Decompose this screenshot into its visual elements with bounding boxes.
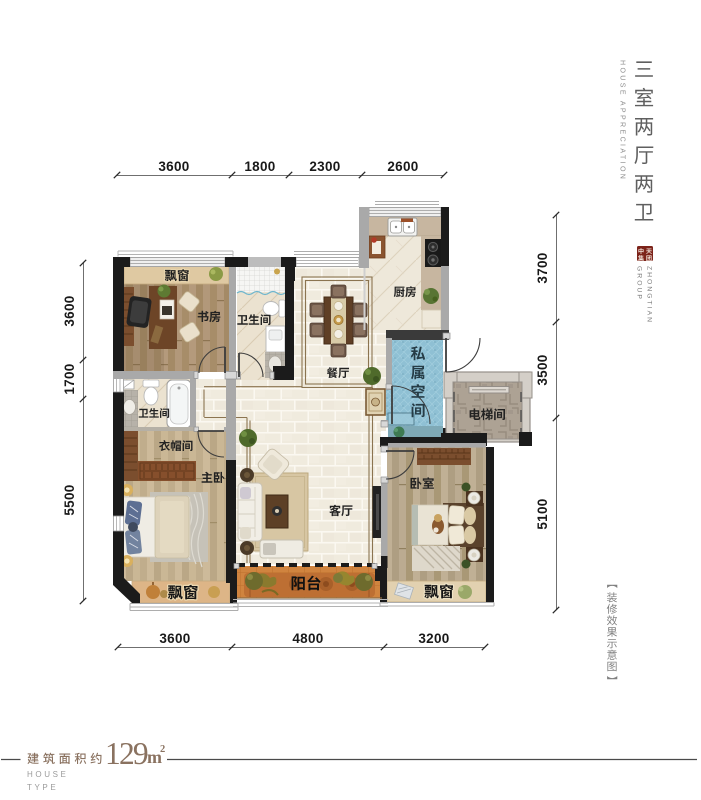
svg-text:3200: 3200: [418, 631, 449, 646]
svg-text:HOUSE APPRECIATION: HOUSE APPRECIATION: [619, 60, 626, 181]
svg-text:4800: 4800: [292, 631, 323, 646]
svg-text:3500: 3500: [535, 354, 550, 385]
svg-text:ZHONGTIAN: ZHONGTIAN: [646, 266, 653, 324]
svg-text:1800: 1800: [244, 159, 275, 174]
svg-text:HOUSE: HOUSE: [27, 770, 68, 779]
svg-text:129: 129: [105, 736, 148, 771]
svg-text:2: 2: [160, 744, 165, 755]
svg-text:3600: 3600: [159, 631, 190, 646]
svg-text:2600: 2600: [387, 159, 418, 174]
svg-text:GROUP: GROUP: [636, 266, 643, 301]
svg-text:5500: 5500: [62, 484, 77, 515]
svg-text:2300: 2300: [309, 159, 340, 174]
svg-text:5100: 5100: [535, 498, 550, 529]
svg-text:1700: 1700: [62, 363, 77, 394]
svg-text:3600: 3600: [62, 295, 77, 326]
svg-text:TYPE: TYPE: [27, 783, 58, 792]
svg-text:3600: 3600: [158, 159, 189, 174]
svg-text:3700: 3700: [535, 252, 550, 283]
